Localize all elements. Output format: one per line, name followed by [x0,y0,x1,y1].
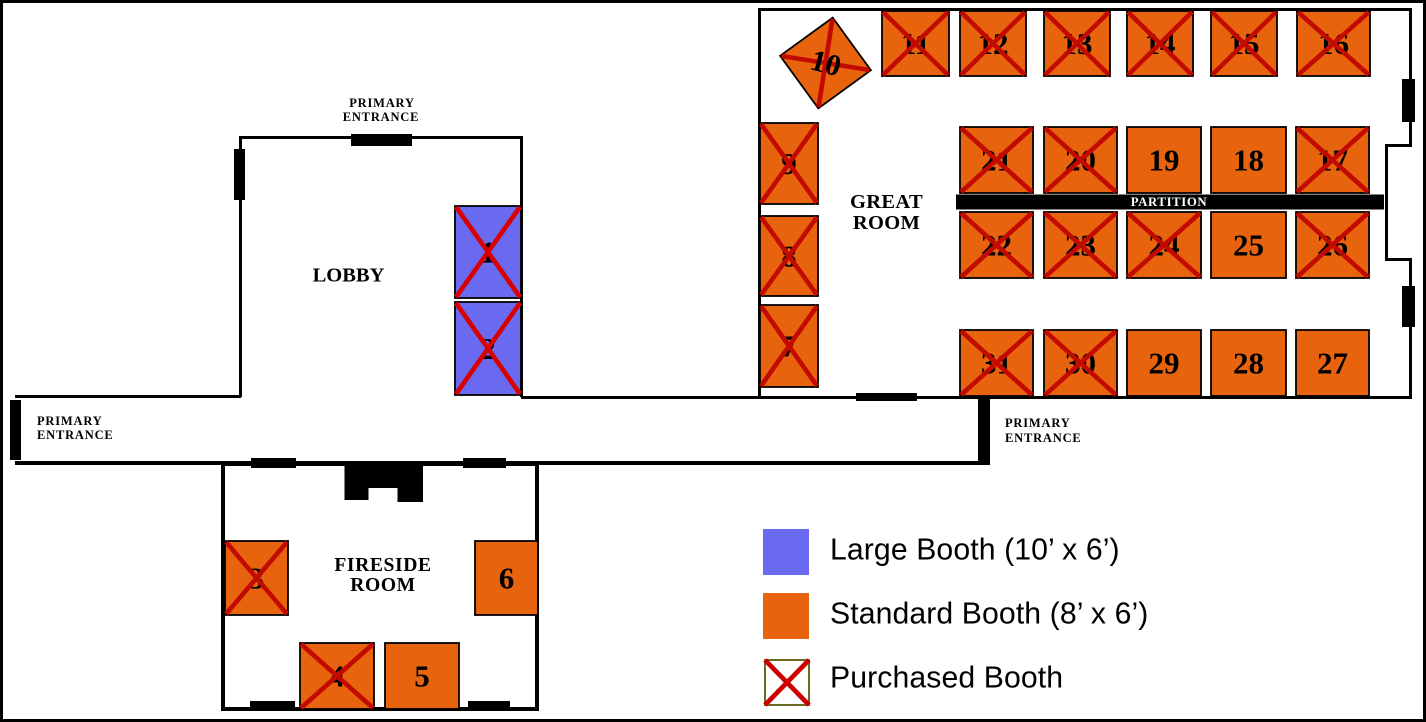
svg-text:ENTRANCE: ENTRANCE [37,428,114,442]
svg-text:ROOM: ROOM [350,575,416,596]
svg-text:19: 19 [1149,143,1180,178]
svg-text:28: 28 [1233,346,1264,381]
svg-text:27: 27 [1317,346,1348,381]
svg-text:FIRESIDE: FIRESIDE [334,555,431,576]
svg-text:PRIMARY: PRIMARY [37,414,103,428]
svg-text:Standard Booth (8’ x 6’): Standard Booth (8’ x 6’) [830,598,1148,631]
svg-text:ENTRANCE: ENTRANCE [1005,431,1082,445]
svg-text:6: 6 [499,561,515,596]
svg-text:ENTRANCE: ENTRANCE [343,110,420,124]
svg-text:PRIMARY: PRIMARY [1005,416,1071,430]
svg-text:25: 25 [1233,228,1264,263]
svg-text:18: 18 [1233,143,1264,178]
svg-text:Large Booth (10’ x 6’): Large Booth (10’ x 6’) [830,534,1120,567]
svg-text:GREAT: GREAT [850,191,923,213]
svg-text:Purchased Booth: Purchased Booth [830,662,1063,695]
svg-text:29: 29 [1149,346,1180,381]
svg-text:ROOM: ROOM [853,212,920,234]
svg-text:PRIMARY: PRIMARY [349,96,415,110]
svg-text:LOBBY: LOBBY [313,265,385,287]
svg-text:5: 5 [414,659,430,694]
svg-text:PARTITION: PARTITION [1131,195,1208,209]
